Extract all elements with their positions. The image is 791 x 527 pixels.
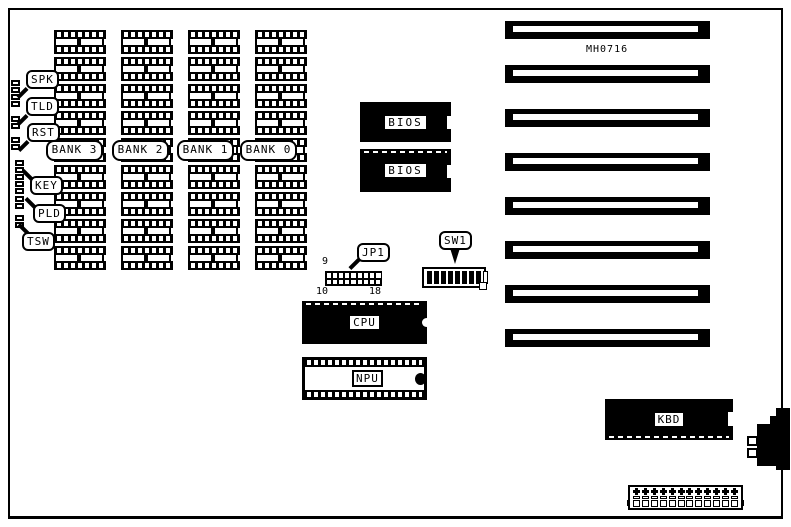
power-pin [722,488,729,495]
memory-chip [188,192,240,216]
power-pin [642,496,649,499]
header-pin [15,203,24,209]
jp1-callout: JP1 [357,243,390,262]
bios-top-notch [447,116,452,129]
bios-bottom-label: BIOS [384,163,427,178]
jumper-pin [351,280,355,285]
tsw-label-callout: TSW [22,232,55,251]
npu-pin-row-top [307,360,422,365]
header-pin [15,160,24,166]
power-pin [686,500,693,507]
power-pin [686,488,693,495]
memory-chip [255,84,307,108]
power-pin [695,496,702,499]
jumper-pin [376,280,380,285]
memory-chip [121,84,173,108]
power-pin [704,500,711,507]
dip-switch-position [455,271,460,284]
power-pin [713,488,720,495]
expansion-slot [505,285,710,303]
npu-pin-row-bottom [307,392,422,397]
power-pin [642,488,649,495]
memory-chip [54,111,106,135]
jp1-jumper-block [325,271,382,286]
power-pin [713,500,720,507]
sw1-dip-switch [422,267,486,288]
power-pin [678,496,685,499]
power-connector [628,485,743,510]
power-pin [633,500,640,507]
memory-chip [188,111,240,135]
jumper-pin [370,273,374,278]
keyboard-connector-body [757,424,779,466]
bios-chip-top: BIOS [360,102,451,142]
jumper-pin [351,273,355,278]
power-pin [722,496,729,499]
memory-chip [121,192,173,216]
dip-switch-position [441,271,446,284]
jp1-pin9-number: 9 [322,256,328,267]
bank-0-label: BANK 0 [240,140,297,161]
jumper-pin [339,273,343,278]
header-pin [15,215,24,221]
power-pin-row-plus [630,488,741,495]
header-pin [11,137,20,143]
memory-chip [54,57,106,81]
power-pin [669,496,676,499]
memory-chip [255,111,307,135]
memory-chip [188,84,240,108]
memory-chip [188,219,240,243]
power-pin [660,500,667,507]
pld-label-callout: PLD [33,204,66,223]
jumper-pin [345,273,349,278]
memory-chip [255,246,307,270]
expansion-slot [505,153,710,171]
kbd-notch [728,412,734,426]
power-pin [713,496,720,499]
bios-chip-bottom: BIOS [360,149,451,192]
jumper-pin [333,273,337,278]
jumper-pin [327,273,331,278]
expansion-slot [505,21,710,39]
jumper-pin [339,280,343,285]
power-pin [651,488,658,495]
jp1-pin18-number: 18 [369,286,381,297]
expansion-slot [505,109,710,127]
power-pin [695,488,702,495]
jumper-pin [364,273,368,278]
memory-chip [188,30,240,54]
power-pin [695,500,702,507]
dip-switch-position [434,271,439,284]
keyboard-connector-pin-block-top [747,436,758,446]
bank-1-label: BANK 1 [177,140,234,161]
header-pin [15,188,24,194]
key-label-callout: KEY [30,176,63,195]
sw1-callout: SW1 [439,231,472,250]
memory-chip [255,30,307,54]
npu-label: NPU [352,370,383,387]
memory-chip [121,30,173,54]
jp1-open-jumper [375,272,382,279]
power-pin [660,496,667,499]
header-pin [11,101,20,107]
power-pin [731,496,738,499]
power-connector-right-tab [741,500,744,506]
header-pin [15,174,24,180]
power-pin [704,496,711,499]
header-pin [15,196,24,202]
kbd-label: KBD [654,412,685,427]
power-pin [642,500,649,507]
power-pin [669,488,676,495]
power-pin [651,500,658,507]
kbd-chip: KBD [605,399,733,440]
memory-chip [188,165,240,189]
npu-notch [415,373,426,385]
memory-chip [121,57,173,81]
jp1-pin10-number: 10 [316,286,328,297]
jumper-pin [370,280,374,285]
memory-chip [121,111,173,135]
cpu-dashed-edge [306,303,423,305]
memory-chip [121,246,173,270]
power-pin [633,496,640,499]
header-pin [11,80,20,86]
power-pin-row-bars [630,496,741,499]
jumper-pin [333,280,337,285]
kbd-dashed-edge [609,436,729,438]
memory-chip [121,165,173,189]
npu-socket: NPU [302,357,427,400]
power-pin-row-squares [630,500,741,507]
power-pin [633,488,640,495]
expansion-slot [505,65,710,83]
memory-chip [121,219,173,243]
jumper-pin [358,280,362,285]
jumper-pin [364,280,368,285]
bios-top-label: BIOS [384,115,427,130]
expansion-slot [505,329,710,347]
cpu-chip: CPU [302,301,427,344]
dip-switch-position [462,271,467,284]
power-pin [731,488,738,495]
power-connector-left-tab [627,500,630,506]
expansion-slot [505,241,710,259]
memory-chip [54,84,106,108]
memory-chip [188,57,240,81]
dip-switch-position [469,271,474,284]
motherboard-diagram: SPK TLD RST KEY PLD TSW BANK 3 BANK 2 BA… [0,0,791,527]
power-pin [660,488,667,495]
key-header [15,160,24,195]
memory-chip [255,219,307,243]
memory-chip [54,246,106,270]
dip-switch-position [448,271,453,284]
memory-chip [255,57,307,81]
power-pin [731,500,738,507]
keyboard-connector-pin-block-bottom [747,448,758,458]
cpu-notch [422,318,431,327]
tld-label-callout: TLD [26,97,59,116]
memory-chip [188,246,240,270]
jumper-pin [327,280,331,285]
power-pin [669,500,676,507]
header-pin [15,181,24,187]
memory-chip [255,165,307,189]
board-model-label: MH0716 [586,44,628,55]
memory-chip [255,192,307,216]
jumper-pin [358,273,362,278]
power-pin [678,488,685,495]
bios-bottom-dashed-edge [364,151,447,153]
memory-chip [54,30,106,54]
power-pin [686,496,693,499]
bios-bottom-notch [447,165,452,178]
cpu-label: CPU [348,314,381,331]
sw1-callout-tail [450,248,460,264]
sw1-corner-tab [479,282,487,290]
power-pin [651,496,658,499]
expansion-slot [505,197,710,215]
power-pin [678,500,685,507]
dip-switch-position [427,271,432,284]
pld-header [15,196,24,210]
bank-2-label: BANK 2 [112,140,169,161]
power-pin [704,488,711,495]
jumper-pin [345,280,349,285]
bank-3-label: BANK 3 [46,140,103,161]
power-pin [722,500,729,507]
spk-label-callout: SPK [26,70,59,89]
